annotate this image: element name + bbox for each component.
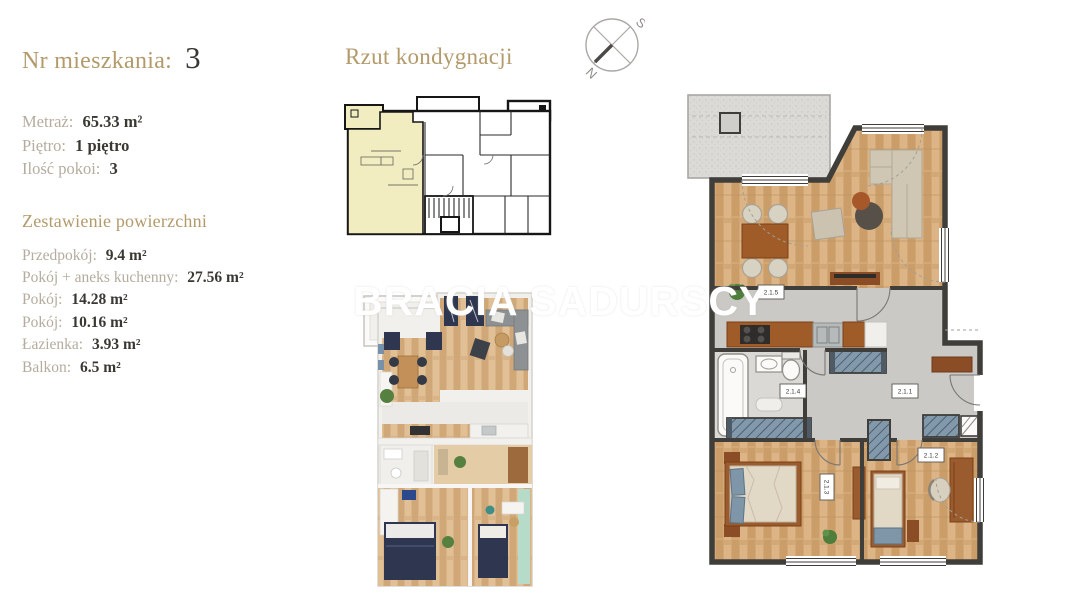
apartment-number-value: 3 bbox=[185, 40, 201, 75]
room-label-bathroom: 2.1.4 bbox=[780, 384, 806, 398]
area-label: Przedpokój: bbox=[22, 247, 97, 264]
desk bbox=[950, 458, 973, 522]
floor-section-heading: Rzut kondygnacji bbox=[345, 44, 513, 70]
desk-chair bbox=[929, 478, 950, 502]
area-value: 3.93 m² bbox=[92, 336, 141, 353]
area-row: Pokój: 14.28 m² bbox=[22, 289, 322, 311]
area-row: Przedpokój: 9.4 m² bbox=[22, 245, 322, 267]
area-label: Balkon: bbox=[22, 359, 71, 376]
stairwell bbox=[425, 196, 473, 234]
bedroom1-bed bbox=[724, 452, 801, 537]
toilet bbox=[782, 352, 800, 380]
area-label: Pokój + aneks kuchenny: bbox=[22, 269, 178, 286]
compass-south-label: S bbox=[633, 15, 645, 32]
area-value: 6.5 m² bbox=[80, 359, 121, 376]
area-label: Pokój: bbox=[22, 314, 62, 331]
apartment-floor-plan: 2.1.5 2.1.4 2.1.1 2.1.3 2.1.2 bbox=[668, 80, 1020, 592]
area-value: 10.16 m² bbox=[71, 314, 127, 331]
svg-text:2.1.5: 2.1.5 bbox=[764, 290, 779, 297]
svg-text:2.1.4: 2.1.4 bbox=[786, 389, 801, 396]
details-list: Metraż: 65.33 m² Piętro: 1 piętro Ilość … bbox=[22, 110, 322, 181]
building-floor-plan bbox=[343, 95, 555, 241]
bathroom-sink bbox=[756, 356, 782, 372]
detail-value: 1 piętro bbox=[75, 136, 129, 155]
area-row: Łazienka: 3.93 m² bbox=[22, 334, 322, 356]
area-label: Pokój: bbox=[22, 291, 62, 308]
areas-section: Zestawienie powierzchni Przedpokój: 9.4 … bbox=[22, 211, 322, 379]
apartment-number-heading: Nr mieszkania: 3 bbox=[22, 40, 322, 76]
svg-text:2.1.2: 2.1.2 bbox=[924, 453, 939, 460]
detail-label: Metraż: bbox=[22, 112, 73, 131]
room-label-living: 2.1.5 bbox=[758, 285, 784, 299]
detail-label: Piętro: bbox=[22, 136, 66, 155]
bedroom2-wardrobe bbox=[923, 415, 978, 437]
detail-label: Ilość pokoi: bbox=[22, 159, 100, 178]
area-label: Łazienka: bbox=[22, 336, 83, 353]
detail-value: 3 bbox=[110, 159, 118, 178]
bath-mat bbox=[756, 398, 782, 411]
hall-wardrobe bbox=[830, 350, 886, 373]
area-value: 14.28 m² bbox=[71, 291, 127, 308]
entrance-door-gap bbox=[974, 375, 986, 411]
apartment-info-panel: Nr mieszkania: 3 Metraż: 65.33 m² Piętro… bbox=[22, 40, 322, 379]
area-value: 27.56 m² bbox=[187, 269, 243, 286]
highlighted-apartment bbox=[345, 105, 423, 234]
detail-row-pietro: Piętro: 1 piętro bbox=[22, 134, 322, 158]
room-label-hall: 2.1.1 bbox=[892, 384, 918, 398]
svg-text:2.1.1: 2.1.1 bbox=[898, 389, 913, 396]
apartment-spec-page: Nr mieszkania: 3 Metraż: 65.33 m² Piętro… bbox=[0, 0, 1071, 600]
detail-row-metraz: Metraż: 65.33 m² bbox=[22, 110, 322, 134]
area-row: Pokój: 10.16 m² bbox=[22, 312, 322, 334]
bedroom1-wardrobe bbox=[727, 418, 811, 440]
entry-bench bbox=[932, 357, 972, 372]
hall-closet bbox=[868, 420, 890, 460]
area-row: Balkon: 6.5 m² bbox=[22, 357, 322, 379]
area-row: Pokój + aneks kuchenny: 27.56 m² bbox=[22, 267, 322, 289]
kitchen-counter bbox=[727, 322, 887, 347]
side-table bbox=[852, 192, 870, 210]
room-label-bedroom1: 2.1.3 bbox=[820, 474, 834, 500]
detail-value: 65.33 m² bbox=[82, 112, 142, 131]
room-label-bedroom2: 2.1.2 bbox=[918, 448, 944, 462]
apartment-number-label: Nr mieszkania: bbox=[22, 48, 172, 74]
compass-icon: S N bbox=[581, 11, 645, 79]
detail-row-pokoje: Ilość pokoi: 3 bbox=[22, 157, 322, 181]
svg-text:2.1.3: 2.1.3 bbox=[823, 480, 830, 495]
areas-heading: Zestawienie powierzchni bbox=[22, 211, 322, 232]
area-value: 9.4 m² bbox=[106, 247, 147, 264]
armchair bbox=[811, 208, 845, 240]
terrace bbox=[688, 95, 830, 178]
tv-console bbox=[830, 272, 880, 285]
apartment-3d-render bbox=[356, 276, 554, 598]
